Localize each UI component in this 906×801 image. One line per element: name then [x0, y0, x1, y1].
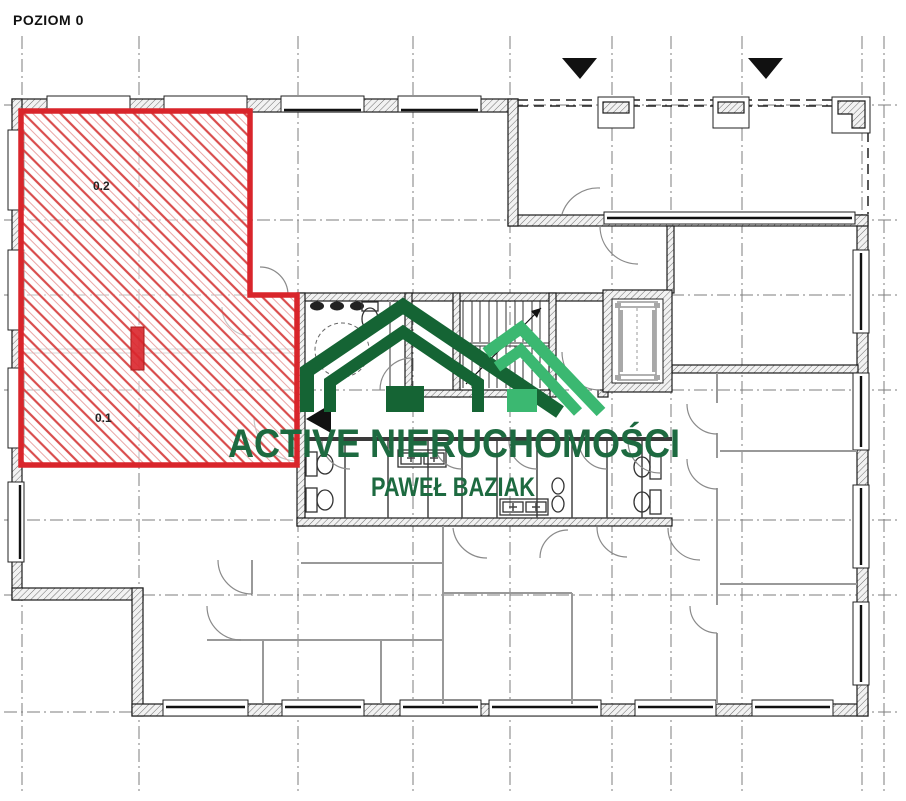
floor-level-label: POZIOM 0 — [13, 12, 84, 28]
floor-plan-drawing: 0.20.1ACTIVE NIERUCHOMOŚCIPAWEŁ BAZIAK — [0, 0, 906, 801]
core-walls-shape — [297, 518, 672, 526]
core-walls-shape — [297, 293, 607, 301]
window — [8, 482, 24, 562]
area-label-01: 0.1 — [95, 411, 112, 425]
elevator-shape — [615, 375, 621, 380]
urinal — [552, 478, 564, 494]
wall-step-vertical — [132, 588, 143, 716]
elevator-shape — [619, 310, 623, 372]
entrance-arrow — [748, 58, 783, 79]
urinal — [552, 496, 564, 512]
wall-porch-side — [508, 99, 518, 226]
logo-dark-door — [386, 386, 424, 412]
red-premises: 0.20.1 — [21, 111, 297, 465]
column — [603, 102, 629, 113]
toilet-bowl — [317, 490, 333, 510]
column — [718, 102, 744, 113]
premises-outline — [21, 111, 297, 465]
elevator — [612, 299, 663, 383]
core-walls-shape — [672, 365, 858, 373]
basin — [330, 302, 344, 311]
canopy-and-columns — [518, 58, 870, 214]
toilet-tank — [650, 490, 661, 514]
basin — [310, 302, 324, 311]
core-walls-shape — [667, 226, 674, 293]
elevator-shape — [652, 310, 656, 372]
premises-pier — [131, 327, 144, 370]
watermark-subtitle: PAWEŁ BAZIAK — [371, 472, 535, 502]
wall-step-horizontal — [12, 588, 143, 600]
watermark-title: ACTIVE NIERUCHOMOŚCI — [228, 420, 680, 466]
elevator-shape — [654, 303, 660, 308]
elevator-shape — [654, 375, 660, 380]
logo-light-door — [507, 389, 537, 412]
elevator-shape — [615, 303, 621, 308]
area-label-02: 0.2 — [93, 179, 110, 193]
toilet-tank — [362, 302, 378, 311]
floor-plan-page: 0.20.1ACTIVE NIERUCHOMOŚCIPAWEŁ BAZIAK P… — [0, 0, 906, 801]
toilet-tank — [306, 488, 317, 512]
canopy-dashed-line — [518, 100, 868, 214]
entrance-arrow — [562, 58, 597, 79]
